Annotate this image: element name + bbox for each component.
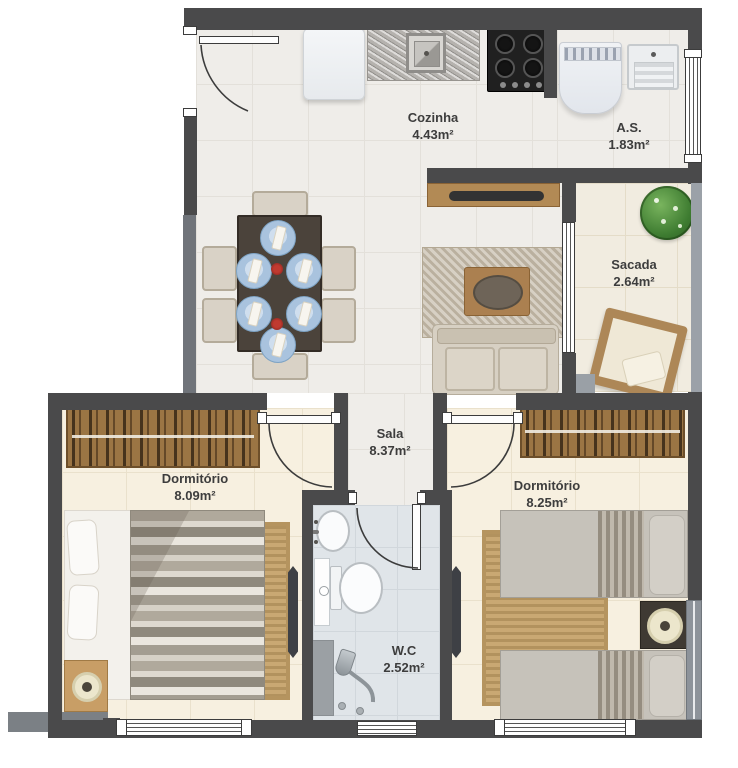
- dining-chair: [252, 191, 308, 217]
- bathroom-door-leaf: [412, 504, 421, 570]
- door-jamb: [417, 492, 426, 504]
- place-setting: [286, 296, 322, 332]
- door-jamb: [257, 412, 267, 424]
- wall-mid-horizontal-b: [516, 393, 702, 410]
- stove-knob: [524, 82, 530, 88]
- room-name: Dormitório: [135, 471, 255, 488]
- sink-faucet-dot: [314, 540, 318, 544]
- bedroom-1-duvet: [130, 510, 265, 700]
- window-cap: [116, 719, 127, 736]
- bedroom-1-nightstand: [64, 660, 108, 712]
- armchair-pillow: [621, 350, 667, 387]
- room-label-bedroom-2: Dormitório 8.25m²: [487, 478, 607, 511]
- duvet-fold: [131, 511, 189, 621]
- wall-left-mid: [183, 215, 196, 403]
- bed-runner: [598, 511, 644, 597]
- place-setting: [236, 253, 272, 289]
- room-name: Sacada: [574, 257, 694, 274]
- place-setting: [260, 327, 296, 363]
- bed-pillow: [66, 519, 100, 576]
- table-centerpiece: [271, 318, 283, 330]
- room-name: Cozinha: [373, 110, 493, 127]
- room-name: Dormitório: [487, 478, 607, 495]
- wall-kitchen-laundry-divider: [544, 28, 557, 98]
- napkin: [297, 301, 313, 327]
- wall-balcony-divider-bottom: [562, 353, 576, 393]
- wall-kitchen-living-divider: [427, 168, 702, 183]
- bedroom-2-wardrobe: [520, 406, 685, 458]
- room-area: 8.25m²: [487, 495, 607, 512]
- burner-icon: [523, 58, 543, 78]
- sink-drain: [424, 51, 429, 56]
- bedroom-2-side-window: [686, 600, 702, 720]
- bed-pillow: [67, 584, 100, 640]
- wall-wc-right: [440, 505, 452, 723]
- sofa-cushion: [498, 347, 548, 391]
- door-jamb: [331, 412, 341, 424]
- stove-knob: [500, 82, 506, 88]
- lamp-core: [660, 621, 670, 631]
- napkin: [247, 301, 263, 327]
- door-jamb: [183, 108, 197, 117]
- plant-speck: [678, 224, 682, 228]
- wardrobe-rail: [72, 435, 254, 438]
- room-label-bathroom: W.C 2.52m²: [344, 643, 464, 676]
- room-name: W.C: [344, 643, 464, 660]
- sink-faucet-dot: [314, 520, 318, 524]
- place-setting: [286, 253, 322, 289]
- sink-faucet-dot: [312, 530, 319, 534]
- stove-knob: [536, 82, 542, 88]
- tv-icon: [449, 191, 544, 201]
- wardrobe-rail: [525, 430, 680, 433]
- place-setting: [260, 220, 296, 256]
- shower-knob: [338, 702, 346, 710]
- potted-plant: [640, 186, 694, 240]
- bed-runner: [598, 651, 644, 719]
- bedroom-2-bed-upper: [500, 510, 688, 598]
- wall-left-upper-b: [184, 112, 197, 215]
- place-setting: [236, 296, 272, 332]
- refrigerator: [303, 28, 365, 100]
- bathroom-shelf: [314, 558, 330, 626]
- floor-plan: Cozinha 4.43m² A.S. 1.83m² Sacada 2.64m²…: [0, 0, 738, 768]
- wall-wc-left: [302, 505, 313, 723]
- room-area: 4.43m²: [373, 127, 493, 144]
- lamp-core: [82, 682, 92, 692]
- nightstand-lamp: [72, 672, 102, 702]
- burner-icon: [495, 58, 515, 78]
- burner-icon: [523, 34, 543, 54]
- bedroom-2-bed-lower: [500, 650, 688, 720]
- tv-console: [427, 183, 560, 207]
- bathroom-window: [357, 721, 417, 736]
- window-cap: [684, 154, 702, 163]
- wall-right-bottom-corner: [688, 718, 702, 738]
- tub-ridges: [634, 62, 674, 88]
- shower-knob: [356, 707, 364, 715]
- room-label-laundry: A.S. 1.83m²: [569, 120, 689, 153]
- bathroom-sink: [316, 510, 350, 552]
- window-cap: [625, 719, 636, 736]
- door-jamb: [513, 412, 523, 424]
- window-cap: [241, 719, 252, 736]
- bedroom-2-window: [494, 719, 636, 736]
- wall-right-lower: [688, 392, 702, 602]
- room-area: 1.83m²: [569, 137, 689, 154]
- room-area: 2.52m²: [344, 660, 464, 677]
- tub-drain: [651, 52, 656, 57]
- wall-left-lower: [48, 393, 62, 738]
- bedroom-2-nightstand: [640, 601, 688, 649]
- wall-balcony-divider-top: [562, 183, 576, 222]
- plant-speck: [654, 198, 659, 203]
- bed-pillow: [649, 515, 685, 595]
- bedroom-2-door-leaf: [449, 415, 516, 424]
- plant-speck: [673, 206, 678, 211]
- bedroom-1-door-leaf: [266, 415, 333, 424]
- bed-pillow: [649, 655, 685, 717]
- napkin: [297, 258, 313, 284]
- entry-door-leaf: [199, 36, 279, 44]
- sofa-backrest: [437, 328, 556, 344]
- room-area: 2.64m²: [574, 274, 694, 291]
- dining-chair: [202, 298, 237, 343]
- coffee-table: [464, 267, 530, 316]
- room-label-living: Sala 8.37m²: [330, 426, 450, 459]
- cooktop-stove: [487, 28, 549, 92]
- wall-top: [185, 8, 702, 30]
- room-label-balcony: Sacada 2.64m²: [574, 257, 694, 290]
- door-jamb: [442, 412, 452, 424]
- toilet-bowl: [339, 562, 383, 614]
- sofa-cushion: [445, 347, 495, 391]
- stove-knob: [512, 82, 518, 88]
- room-area: 8.37m²: [330, 443, 450, 460]
- washer-control-panel: [564, 47, 621, 61]
- room-name: A.S.: [569, 120, 689, 137]
- room-label-kitchen: Cozinha 4.43m²: [373, 110, 493, 143]
- balcony-column: [576, 374, 595, 393]
- burner-icon: [495, 34, 515, 54]
- napkin: [271, 225, 287, 251]
- window-cap: [684, 49, 702, 58]
- bedroom-1-window: [116, 719, 252, 736]
- room-area: 8.09m²: [135, 488, 255, 505]
- window-cap: [494, 719, 505, 736]
- laundry-tub: [627, 44, 679, 90]
- coffee-table-top: [473, 275, 523, 310]
- washing-machine: [559, 42, 622, 114]
- sofa: [432, 324, 559, 395]
- plant-speck: [661, 219, 666, 224]
- room-name: Sala: [330, 426, 450, 443]
- bedroom-1-mirror-panel: [288, 566, 298, 658]
- dining-chair: [321, 246, 356, 291]
- door-jamb: [348, 492, 357, 504]
- flush-button: [319, 586, 329, 596]
- napkin: [247, 258, 263, 284]
- dining-chair: [321, 298, 356, 343]
- bedroom-1-wardrobe: [66, 406, 260, 468]
- dining-chair: [202, 246, 237, 291]
- napkin: [271, 332, 287, 358]
- wall-mid-horizontal-a: [48, 393, 267, 410]
- kitchen-sink: [406, 33, 446, 73]
- room-label-bedroom-1: Dormitório 8.09m²: [135, 471, 255, 504]
- nightstand-lamp: [647, 608, 683, 644]
- door-jamb: [183, 26, 197, 35]
- table-centerpiece: [271, 263, 283, 275]
